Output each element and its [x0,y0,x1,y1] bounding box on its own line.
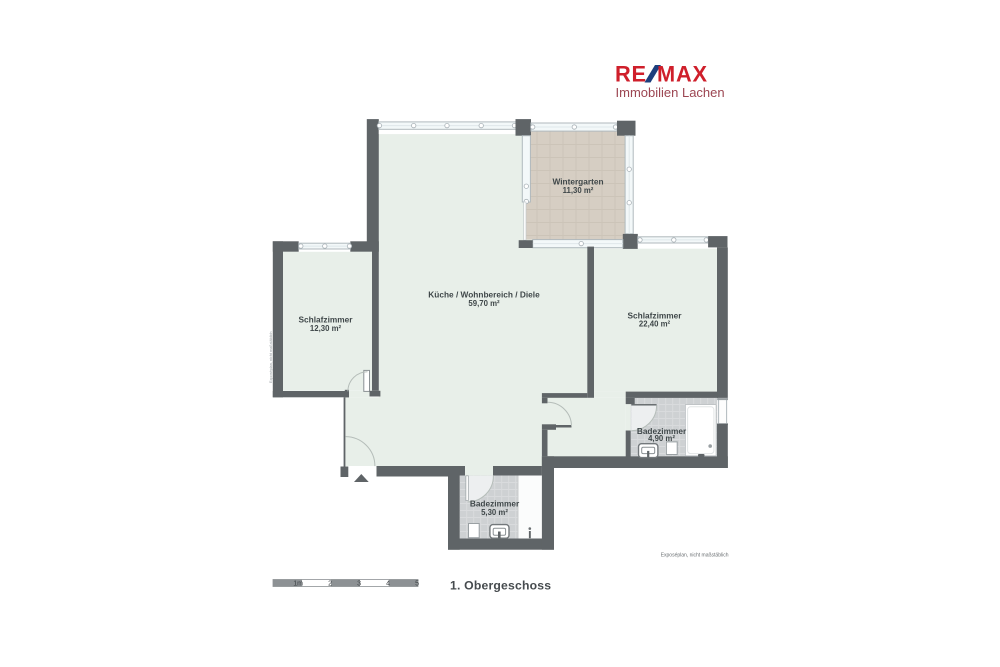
svg-text:11,30 m²: 11,30 m² [563,186,594,195]
svg-text:Exposéplan, nicht maßstäblich: Exposéplan, nicht maßstäblich [269,332,273,384]
svg-text:MAX: MAX [657,62,708,87]
svg-text:22,40 m²: 22,40 m² [639,320,671,329]
svg-text:4,90 m²: 4,90 m² [648,434,675,443]
svg-text:Schlafzimmer: Schlafzimmer [299,315,354,325]
svg-text:3: 3 [357,581,361,588]
svg-text:Immobilien Lachen: Immobilien Lachen [616,85,725,100]
svg-text:Exposéplan, nicht maßstäblich: Exposéplan, nicht maßstäblich [661,553,729,559]
svg-text:2: 2 [328,581,332,588]
svg-text:Wintergarten: Wintergarten [552,177,603,187]
svg-text:12,30 m²: 12,30 m² [310,324,342,333]
svg-text:59,70 m²: 59,70 m² [468,299,500,308]
svg-text:1m: 1m [293,581,303,588]
svg-text:5,30 m²: 5,30 m² [481,508,508,517]
svg-text:Küche / Wohnbereich / Diele: Küche / Wohnbereich / Diele [428,290,540,300]
svg-text:1. Obergeschoss: 1. Obergeschoss [450,579,551,593]
svg-text:5: 5 [415,581,419,588]
svg-text:Badezimmer: Badezimmer [470,499,520,509]
svg-text:RE: RE [615,62,647,87]
svg-text:4: 4 [386,581,390,588]
